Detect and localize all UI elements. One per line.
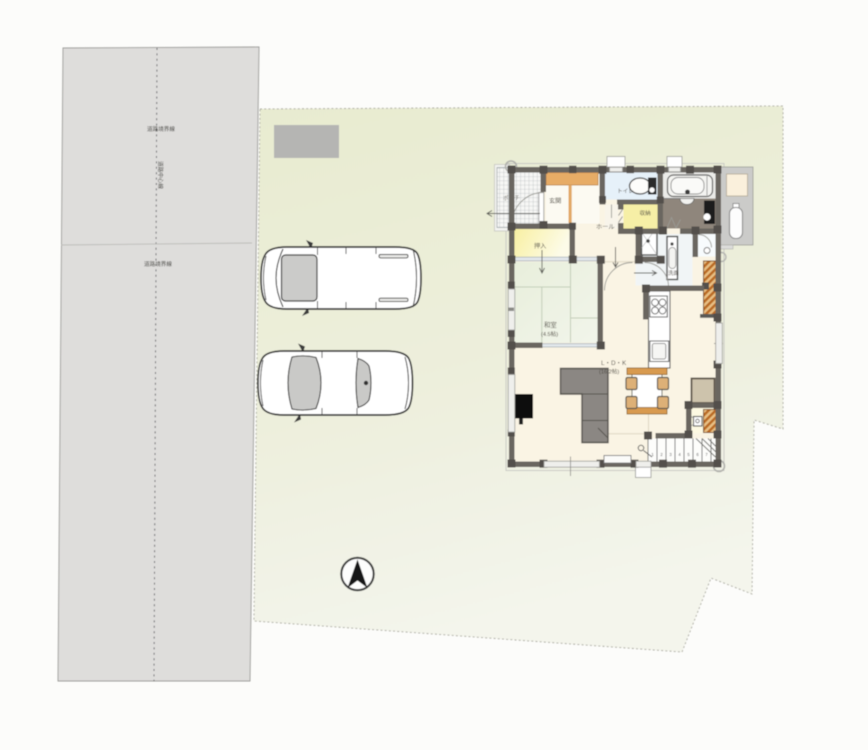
svg-text:押入: 押入 [534, 242, 546, 250]
svg-text:道路中心線: 道路中心線 [157, 161, 165, 189]
svg-text:トイレ: トイレ [617, 189, 634, 195]
svg-text:(16.2帖): (16.2帖) [599, 368, 619, 376]
svg-text:L・D・K: L・D・K [601, 360, 627, 367]
svg-text:道路境界線: 道路境界線 [147, 125, 175, 133]
svg-text:ホール: ホール [596, 224, 615, 231]
svg-text:洗面: 洗面 [668, 269, 679, 277]
svg-text:玄関: 玄関 [549, 197, 561, 205]
svg-text:道路境界線: 道路境界線 [144, 260, 172, 268]
svg-text:ポーチ: ポーチ [503, 194, 520, 202]
svg-text:和室: 和室 [544, 320, 557, 329]
svg-text:(4.5帖): (4.5帖) [541, 330, 558, 338]
svg-text:収納: 収納 [640, 209, 652, 217]
